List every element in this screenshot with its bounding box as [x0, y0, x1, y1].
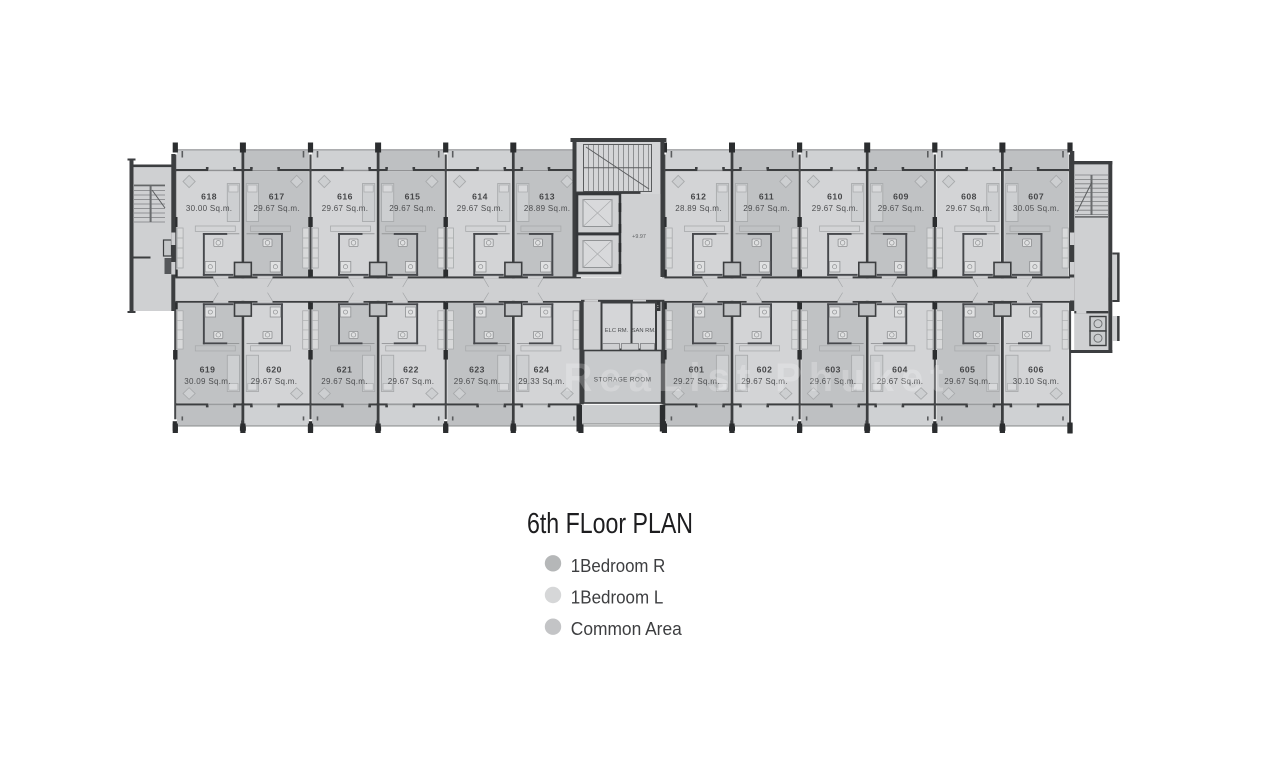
svg-text:622: 622: [403, 365, 419, 375]
svg-text:608: 608: [961, 192, 977, 202]
svg-text:29.67 Sq.m.: 29.67 Sq.m.: [743, 204, 789, 213]
svg-text:607: 607: [1028, 192, 1044, 202]
svg-text:29.67 Sq.m.: 29.67 Sq.m.: [878, 204, 924, 213]
svg-text:30.05 Sq.m.: 30.05 Sq.m.: [1013, 204, 1059, 213]
svg-text:29.67 Sq.m.: 29.67 Sq.m.: [946, 204, 992, 213]
svg-text:611: 611: [759, 192, 774, 202]
svg-text:605: 605: [960, 365, 976, 375]
svg-text:616: 616: [337, 192, 353, 202]
svg-text:610: 610: [827, 192, 843, 202]
svg-text:614: 614: [472, 192, 488, 202]
svg-text:6th FLoor PLAN: 6th FLoor PLAN: [527, 508, 693, 540]
svg-text:29.67 Sq.m.: 29.67 Sq.m.: [457, 204, 503, 213]
svg-text:29.33 Sq.m.: 29.33 Sq.m.: [518, 377, 564, 386]
svg-text:620: 620: [266, 365, 282, 375]
svg-text:Common Area: Common Area: [571, 619, 683, 639]
svg-text:ReaList Phuket: ReaList Phuket: [564, 356, 951, 400]
svg-text:621: 621: [337, 365, 353, 375]
svg-text:623: 623: [469, 365, 485, 375]
svg-text:SAN RM.: SAN RM.: [632, 328, 657, 334]
svg-text:28.89 Sq.m.: 28.89 Sq.m.: [524, 204, 570, 213]
svg-text:+9.97: +9.97: [632, 234, 646, 240]
svg-text:618: 618: [201, 192, 217, 202]
svg-text:613: 613: [539, 192, 555, 202]
svg-text:29.67 Sq.m.: 29.67 Sq.m.: [812, 204, 858, 213]
svg-text:29.67 Sq.m.: 29.67 Sq.m.: [322, 204, 368, 213]
svg-text:30.09 Sq.m.: 30.09 Sq.m.: [184, 377, 230, 386]
svg-text:29.67 Sq.m.: 29.67 Sq.m.: [388, 377, 434, 386]
svg-text:29.67 Sq.m.: 29.67 Sq.m.: [944, 377, 990, 386]
svg-text:29.67 Sq.m.: 29.67 Sq.m.: [253, 204, 299, 213]
svg-text:606: 606: [1028, 365, 1044, 375]
svg-text:617: 617: [269, 192, 285, 202]
svg-text:29.67 Sq.m.: 29.67 Sq.m.: [321, 377, 367, 386]
svg-text:28.89 Sq.m.: 28.89 Sq.m.: [675, 204, 721, 213]
svg-text:30.00 Sq.m.: 30.00 Sq.m.: [186, 204, 232, 213]
svg-text:1Bedroom R: 1Bedroom R: [571, 556, 666, 576]
svg-text:612: 612: [691, 192, 707, 202]
svg-text:29.67 Sq.m.: 29.67 Sq.m.: [454, 377, 500, 386]
svg-text:29.67 Sq.m.: 29.67 Sq.m.: [389, 204, 435, 213]
svg-text:29.67 Sq.m.: 29.67 Sq.m.: [251, 377, 297, 386]
svg-text:30.10 Sq.m.: 30.10 Sq.m.: [1013, 377, 1059, 386]
svg-text:ELC RM.: ELC RM.: [605, 328, 629, 334]
svg-text:609: 609: [893, 192, 909, 202]
svg-text:624: 624: [534, 365, 550, 375]
svg-text:1Bedroom L: 1Bedroom L: [571, 588, 664, 608]
svg-text:615: 615: [405, 192, 421, 202]
svg-text:619: 619: [200, 365, 216, 375]
